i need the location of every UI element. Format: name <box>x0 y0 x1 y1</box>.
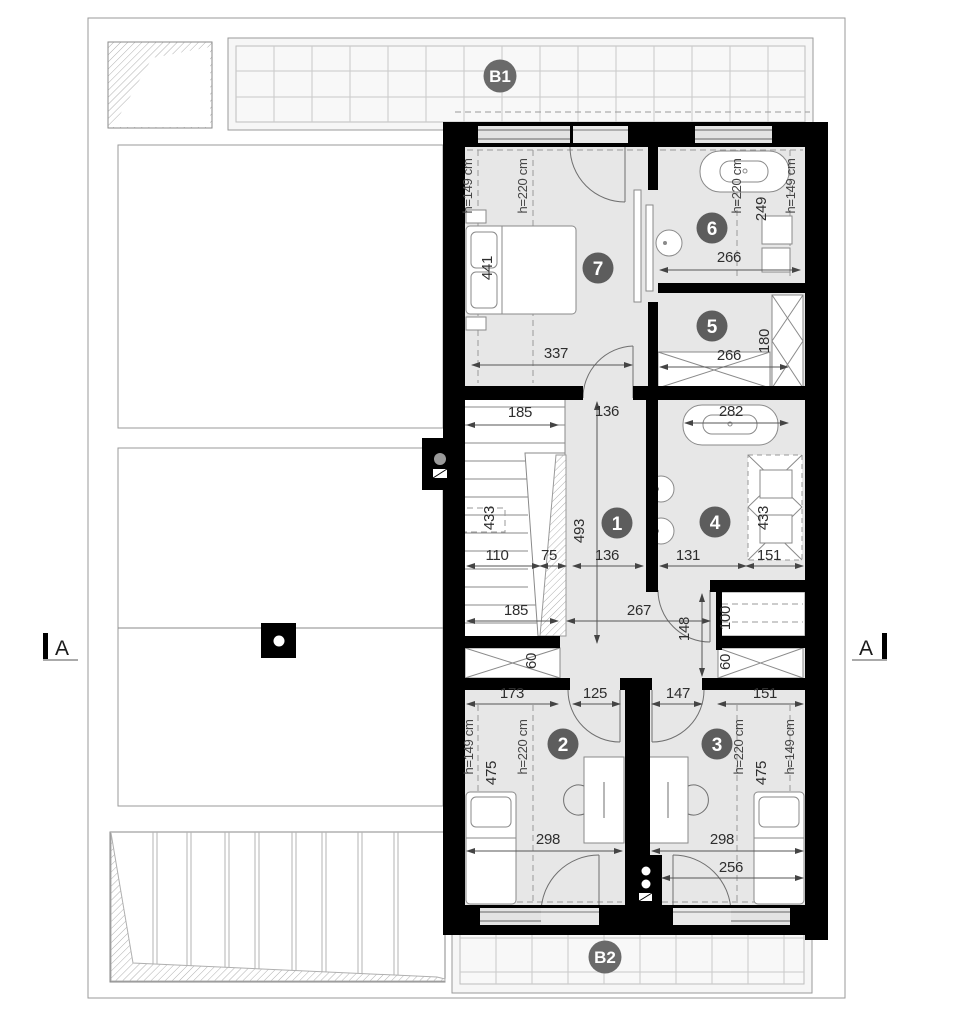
wall-right <box>805 122 828 940</box>
window-room6 <box>695 126 772 143</box>
dim-label: 147 <box>666 685 690 702</box>
dim-label: 337 <box>544 345 568 362</box>
room-badge-7: 7 <box>583 253 614 284</box>
balcony-marker-b2: B2 <box>589 941 622 974</box>
sliding-panel-b <box>646 205 653 291</box>
room-badge-4: 4 <box>700 507 731 538</box>
balcony-door-room7 <box>573 126 628 143</box>
dim-label: 433 <box>755 506 772 530</box>
window-room2 <box>480 908 541 925</box>
room-number: 2 <box>558 735 569 756</box>
b1-label: B1 <box>489 67 511 86</box>
balcony-marker-b1: B1 <box>484 60 517 93</box>
sliding-panel-a <box>634 190 641 302</box>
dim-label: 298 <box>536 831 560 848</box>
dim-label: 282 <box>719 403 743 420</box>
dim-label: h=220 cm <box>731 719 746 774</box>
dim-label: 249 <box>753 197 770 221</box>
room-number: 4 <box>710 513 721 534</box>
dim-label: 267 <box>627 602 651 619</box>
window-room3 <box>731 908 790 925</box>
room-badge-2: 2 <box>548 729 579 760</box>
b2-label: B2 <box>594 948 616 967</box>
dim-label: 151 <box>753 685 777 702</box>
dim-label: h=220 cm <box>515 158 530 213</box>
dim-label: 493 <box>571 519 588 543</box>
floor-plan-page: { "markers": { "b1": "B1", "b2": "B2", "… <box>0 0 968 1024</box>
dim-label: h=220 cm <box>515 719 530 774</box>
dim-label: 266 <box>717 347 741 364</box>
section-marker-right: A <box>852 633 887 660</box>
sink-room6 <box>656 230 682 256</box>
cabinet-room6-b <box>762 248 790 272</box>
floor-plan-drawing: h=149 cm h=220 cm 441 337 h=220 cm 249 h… <box>0 0 968 1024</box>
dim-label: h=220 cm <box>729 158 744 213</box>
dim-label: 136 <box>595 547 619 564</box>
dim-label: 60 <box>523 653 540 669</box>
dim-label: 185 <box>508 404 532 421</box>
wall-stair-bottom <box>443 636 560 648</box>
bathtub-room6 <box>700 151 789 192</box>
room-number: 1 <box>612 514 623 535</box>
room-badge-6: 6 <box>697 213 728 244</box>
dim-label: 136 <box>595 403 619 420</box>
room-number: 7 <box>593 259 604 280</box>
room-badge-3: 3 <box>702 729 733 760</box>
wall-room6-5 <box>658 283 805 293</box>
wall-closet-bottom <box>718 636 805 648</box>
wall-hall-room4 <box>646 400 658 592</box>
room-number: 5 <box>707 317 718 338</box>
shelf-room5 <box>772 295 803 388</box>
terrace-b1 <box>228 38 813 130</box>
wall-mid-right <box>633 386 828 400</box>
bed-room2 <box>466 792 516 904</box>
dim-label: 433 <box>481 506 498 530</box>
dim-label: 151 <box>757 547 781 564</box>
dim-label: h=149 cm <box>460 158 475 213</box>
bed-room3 <box>754 792 804 904</box>
dim-label: 60 <box>717 654 734 670</box>
section-label-left: A <box>55 637 69 660</box>
room-number: 6 <box>707 219 718 240</box>
wall-room7-6-upper <box>648 147 658 190</box>
wall-left <box>443 122 465 912</box>
dim-label: 131 <box>676 547 700 564</box>
dim-label: 100 <box>717 606 734 630</box>
dim-label: h=149 cm <box>783 158 798 213</box>
dim-label: 441 <box>479 256 496 280</box>
dim-label: 475 <box>483 761 500 785</box>
room-badge-5: 5 <box>697 311 728 342</box>
roof-area-left <box>118 145 443 806</box>
dim-label: h=149 cm <box>782 719 797 774</box>
window-room7 <box>478 126 570 143</box>
shaft-rooms23 <box>635 855 662 905</box>
dim-label: 110 <box>485 547 508 564</box>
dim-label: 173 <box>500 685 524 702</box>
dim-label: 185 <box>504 602 528 619</box>
balcony-door-room2 <box>541 908 599 925</box>
chimney-left <box>261 623 296 658</box>
dim-label: 75 <box>541 547 557 564</box>
roof-rect-upper <box>118 145 443 428</box>
wall-room7-5-lower <box>648 302 658 388</box>
dim-label: 298 <box>710 831 734 848</box>
dim-label: 125 <box>583 685 607 702</box>
wall-mid-left <box>443 386 583 400</box>
section-marker-left: A <box>43 633 78 660</box>
dim-label: 266 <box>717 249 741 266</box>
section-label-right: A <box>859 637 873 660</box>
room-badge-1: 1 <box>602 508 633 539</box>
section-bar-left <box>43 633 48 659</box>
dim-label: 256 <box>719 859 743 876</box>
dim-label: 148 <box>676 617 693 641</box>
section-bar-right <box>882 633 887 659</box>
dim-label: 180 <box>756 329 773 353</box>
wall-room4-bottom <box>710 580 828 592</box>
roof-area-bottom-left <box>110 832 445 982</box>
dim-label: 475 <box>753 761 770 785</box>
balcony-door-room3 <box>673 908 731 925</box>
chimney-wall-left <box>422 438 465 490</box>
roof-piece-top-left <box>108 42 212 128</box>
dim-label: h=149 cm <box>461 719 476 774</box>
room-number: 3 <box>712 735 723 756</box>
